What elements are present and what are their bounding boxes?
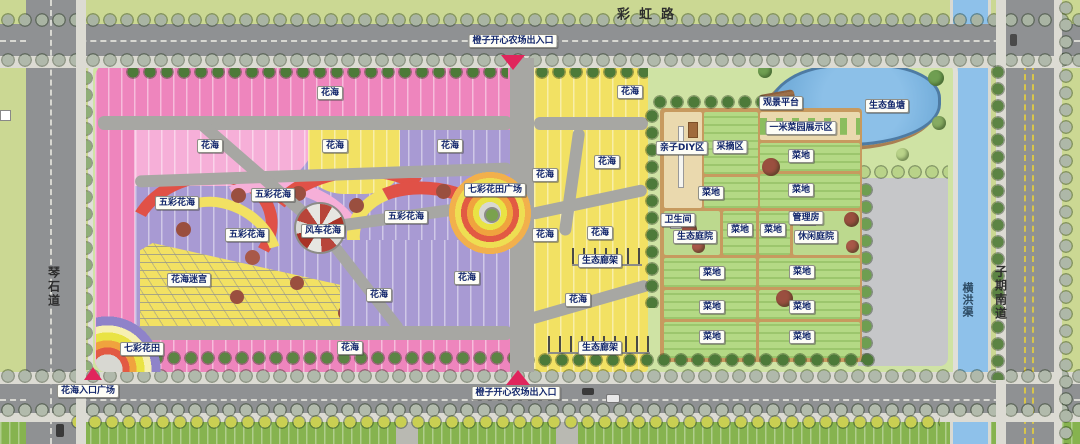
label-flower-sea: 花海: [617, 85, 643, 99]
label-management-house: 管理房: [788, 211, 823, 225]
label-multicolor-flower-sea: 五彩花海: [251, 188, 295, 202]
label-vegetable-plot: 菜地: [788, 149, 814, 163]
label-flower-sea: 花海: [587, 226, 613, 240]
label-vegetable-plot: 菜地: [760, 223, 786, 237]
label-picking-zone: 采摘区: [712, 140, 747, 154]
label-windmill-flower-sea: 风车花海: [301, 224, 345, 238]
car: [606, 394, 620, 403]
entrance-label-south: 橙子开心农场出入口: [471, 386, 560, 400]
labels-layer: 彩虹路琴石道子期南道横洪渠橙子开心农场出入口橙子开心农场出入口花海入口广场花海花…: [0, 0, 1080, 444]
label-flower-sea: 花海: [317, 86, 343, 100]
label-eco-pergola: 生态廊架: [578, 341, 622, 355]
label-eco-fish-pond: 生态鱼塘: [865, 99, 909, 113]
label-vegetable-plot: 菜地: [698, 186, 724, 200]
label-vegetable-plot: 菜地: [699, 300, 725, 314]
label-multicolor-flower-sea: 五彩花海: [225, 228, 269, 242]
entrance-label-north: 橙子开心农场出入口: [468, 34, 557, 48]
label-flower-sea: 花海: [532, 168, 558, 182]
label-flower-sea: 花海: [322, 139, 348, 153]
legend-fragment: [0, 110, 11, 121]
label-multicolor-flower-sea: 五彩花海: [155, 196, 199, 210]
road-label-ziqinan: 子期南道: [993, 265, 1010, 321]
label-flower-maze: 花海迷宫: [167, 273, 211, 287]
label-flower-sea: 花海: [366, 288, 392, 302]
label-vegetable-plot: 菜地: [699, 266, 725, 280]
label-multicolor-flower-sea: 五彩花海: [384, 210, 428, 224]
label-flower-sea: 花海: [454, 271, 480, 285]
label-flower-sea: 花海: [594, 155, 620, 169]
label-family-diy-zone: 亲子DIY区: [656, 141, 708, 155]
rainbow-plaza-center: [484, 207, 500, 223]
label-restroom: 卫生间: [660, 213, 695, 227]
entrance-marker-southwest: [84, 367, 102, 380]
car: [1010, 34, 1017, 46]
label-flower-sea: 花海: [437, 139, 463, 153]
label-flower-sea: 花海: [532, 228, 558, 242]
label-vegetable-plot: 菜地: [788, 183, 814, 197]
label-rainbow-field-plaza: 七彩花田广场: [464, 183, 526, 197]
label-vegetable-plot: 菜地: [789, 265, 815, 279]
label-eco-courtyard: 生态庭院: [673, 230, 717, 244]
entrance-marker-north: [501, 55, 525, 70]
label-flower-sea: 花海: [197, 139, 223, 153]
label-flower-sea: 花海: [337, 341, 363, 355]
label-vegetable-plot: 菜地: [789, 330, 815, 344]
label-flower-sea: 花海: [565, 293, 591, 307]
site-plan-canvas: 彩虹路琴石道子期南道横洪渠橙子开心农场出入口橙子开心农场出入口花海入口广场花海花…: [0, 0, 1080, 444]
road-label-qinshi: 琴石道: [46, 266, 63, 308]
label-rainbow-flower-field: 七彩花田: [120, 342, 164, 356]
channel-label-henghong: 横洪渠: [959, 282, 975, 318]
label-viewing-platform: 观景平台: [759, 96, 803, 110]
label-vegetable-plot: 菜地: [789, 300, 815, 314]
label-vegetable-plot: 菜地: [727, 223, 753, 237]
entrance-marker-south: [506, 370, 530, 385]
label-leisure-courtyard: 休闲庭院: [794, 230, 838, 244]
label-vegetable-plot: 菜地: [699, 330, 725, 344]
label-one-meter-garden: 一米菜园展示区: [765, 121, 836, 135]
entrance-label-flower-plaza: 花海入口广场: [57, 384, 119, 398]
label-eco-pergola: 生态廊架: [578, 254, 622, 268]
car: [582, 388, 594, 395]
road-label-caihong: 彩虹路: [617, 4, 683, 23]
rainbow-field-quarter: [96, 306, 178, 372]
car: [56, 424, 64, 437]
